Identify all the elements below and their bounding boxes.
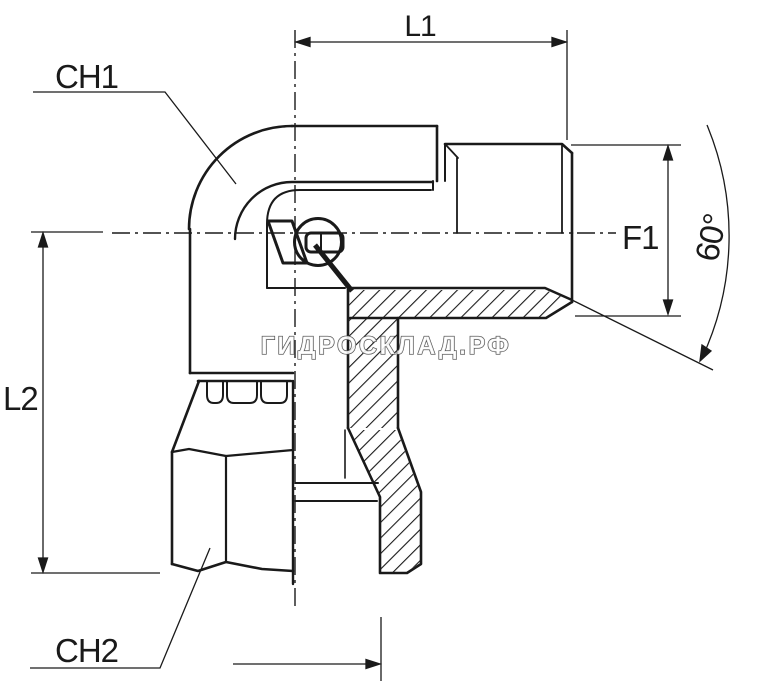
label-ch1: CH1 [55, 58, 118, 95]
hex-bottom-edges [172, 562, 293, 571]
bore-corner-line [267, 190, 431, 288]
hex-top-edges [172, 449, 293, 456]
angle-reference-line [570, 299, 713, 370]
f1-arrow-bottom [664, 300, 673, 314]
leader-ch1 [33, 92, 236, 184]
label-ch2: CH2 [55, 632, 118, 669]
l1-arrow-left [296, 38, 310, 47]
ch1-leader-line [33, 92, 236, 184]
thread-runout-chamfer [445, 144, 458, 158]
l1-arrow-right [552, 38, 566, 47]
f1-arrow-top [664, 146, 673, 160]
nut-cone-chamfer [172, 381, 199, 452]
dimension-l2 [31, 232, 160, 573]
watermark-text: ГИДРОСКЛАД.РФ [261, 332, 512, 360]
bottom-arrow-right [366, 660, 380, 669]
label-l2: L2 [3, 380, 38, 417]
logo-circle-icon [295, 219, 342, 266]
l2-arrow-bottom [39, 558, 48, 572]
nut-chamfer-arc-1 [207, 381, 223, 403]
angle-arrow [700, 345, 711, 361]
label-angle-60: 60° [688, 211, 734, 265]
elbow-fitting-drawing: CH1 L1 F1 60° L2 CH2 ГИДРОСКЛАД.РФ [0, 0, 769, 686]
label-l1: L1 [404, 10, 436, 43]
nut-chamfer-arc-3 [261, 381, 287, 403]
manufacturer-logo [268, 219, 352, 292]
l2-arrow-top [39, 233, 48, 247]
label-f1: F1 [622, 219, 659, 256]
logo-eye-icon [306, 233, 343, 252]
nut-chamfer-arc-2 [227, 381, 257, 403]
technical-drawing-canvas: CH1 L1 F1 60° L2 CH2 ГИДРОСКЛАД.РФ [0, 0, 769, 686]
dimension-l1 [296, 30, 567, 140]
dimension-bottom [233, 617, 381, 681]
stud-thread-top [445, 144, 572, 153]
